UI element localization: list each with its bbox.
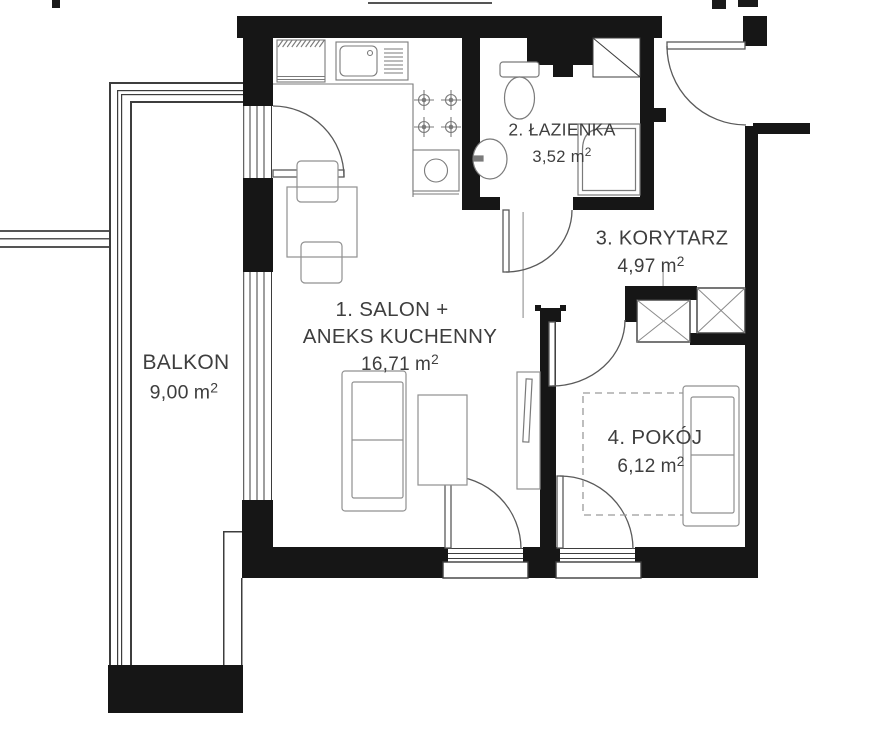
room-window-leaf (557, 476, 563, 548)
area-value: 9,00 (150, 382, 189, 404)
corridor-shaft-wall (625, 286, 697, 300)
kitchen-bathroom-wall (462, 197, 500, 210)
area-unit: m (661, 256, 677, 277)
entrance-door-leaf (667, 42, 745, 49)
bathroom-door-leaf (503, 210, 509, 272)
room-label-lazienka: 2. ŁAZIENKA (508, 120, 615, 141)
room-label-salon-line2: ANEKS KUCHENNY (303, 325, 497, 349)
room-area-balkon: 9,00m2 (150, 380, 219, 405)
balcony-door-window (244, 106, 272, 178)
room-label-balkon: BALKON (143, 351, 230, 375)
chair (301, 242, 342, 283)
burner (414, 90, 434, 110)
exterior-wall-bottom (635, 547, 758, 578)
area-sup: 2 (677, 454, 685, 469)
area-unit: m (571, 148, 585, 166)
entrance-door-arc (667, 46, 746, 125)
oven (413, 150, 459, 191)
window-sill (443, 562, 528, 578)
bathroom-duct-block (527, 38, 593, 65)
tv-cabinet (517, 372, 540, 489)
neighbor-tick (52, 0, 60, 8)
washbasin-tap (474, 156, 483, 161)
room-shaft-wall (690, 333, 758, 345)
neighbor-balcony-line (0, 238, 110, 240)
room-window (556, 549, 641, 579)
balcony-end-wall (108, 665, 243, 713)
area-value: 3,52 (532, 148, 565, 166)
room-label-korytarz: 3. KORYTARZ (596, 228, 729, 251)
area-sup: 2 (677, 254, 685, 269)
vestibule-wall-stub (640, 108, 666, 122)
room-label-pokoj: 4. POKÓJ (608, 426, 703, 450)
area-unit: m (194, 382, 211, 404)
toilet-bowl (505, 77, 535, 119)
bathroom-duct-shaft (593, 38, 640, 77)
area-sup: 2 (210, 380, 218, 396)
room-area-korytarz: 4,97m2 (617, 254, 684, 278)
floor-plan: BALKON 9,00m2 1. SALON + ANEKS KUCHENNY … (0, 0, 896, 740)
room-name: ANEKS KUCHENNY (303, 325, 497, 348)
exterior-wall-top (237, 16, 662, 38)
exterior-wall-left (243, 16, 273, 106)
dining-set (287, 161, 357, 283)
window-sill (556, 562, 641, 578)
bathroom-duct-block (553, 65, 573, 77)
neighbor-balcony-line (0, 246, 110, 248)
neighbor-tick (712, 0, 726, 9)
area-unit: m (661, 456, 677, 477)
chair (297, 161, 338, 202)
room-door-leaf (549, 322, 555, 386)
balcony-window (244, 272, 272, 500)
floor-plan-svg (0, 0, 896, 740)
room-name: 2. ŁAZIENKA (508, 120, 615, 140)
area-value: 6,12 (617, 456, 655, 477)
room-name: 1. SALON + (336, 298, 449, 321)
room-door-arc (552, 320, 625, 386)
area-sup: 2 (585, 145, 592, 159)
entrance-jamb-block (743, 16, 767, 46)
stove-burners (414, 90, 461, 137)
coffee-table (418, 395, 467, 485)
room-label-salon-line1: 1. SALON + (336, 298, 449, 322)
room-name: BALKON (143, 351, 230, 374)
salon-corridor-boundary (523, 212, 524, 318)
neighbor-tick (738, 0, 758, 7)
door-hinge-mark (560, 305, 566, 311)
burner (441, 90, 461, 110)
exterior-wall-bottom (242, 547, 448, 578)
burner (414, 117, 434, 137)
area-value: 4,97 (617, 256, 655, 277)
party-wall-stub (753, 123, 810, 134)
ventilation-shaft-1 (637, 300, 690, 342)
salon-window (443, 549, 528, 579)
neighbor-line (368, 2, 492, 4)
salon-window-arc (448, 476, 521, 549)
neighbor-balcony-line (0, 230, 110, 232)
sink-drainer-lines (384, 49, 403, 73)
living-furniture (342, 371, 540, 511)
room-area-pokoj: 6,12m2 (617, 454, 684, 478)
exterior-wall-right (745, 126, 758, 578)
area-value: 16,71 (361, 354, 410, 375)
kitchen-counter-edge (273, 84, 413, 197)
area-unit: m (415, 354, 431, 375)
corridor-wall-stub (540, 308, 561, 322)
bathroom-door-arc (506, 210, 572, 272)
ventilation-shaft-2 (697, 288, 745, 333)
area-sup: 2 (431, 352, 439, 367)
bathroom-right-wall (640, 38, 654, 210)
room-area-salon: 16,71m2 (361, 352, 439, 376)
room-area-lazienka: 3,52m2 (532, 145, 591, 167)
exterior-wall-left (243, 178, 273, 272)
room-name: 3. KORYTARZ (596, 228, 729, 250)
burner (441, 117, 461, 137)
door-hinge-mark (535, 305, 541, 311)
room-name: 4. POKÓJ (608, 426, 703, 449)
toilet-tank (500, 62, 539, 77)
salon-window-leaf (445, 476, 451, 548)
room-window-arc (560, 476, 633, 549)
